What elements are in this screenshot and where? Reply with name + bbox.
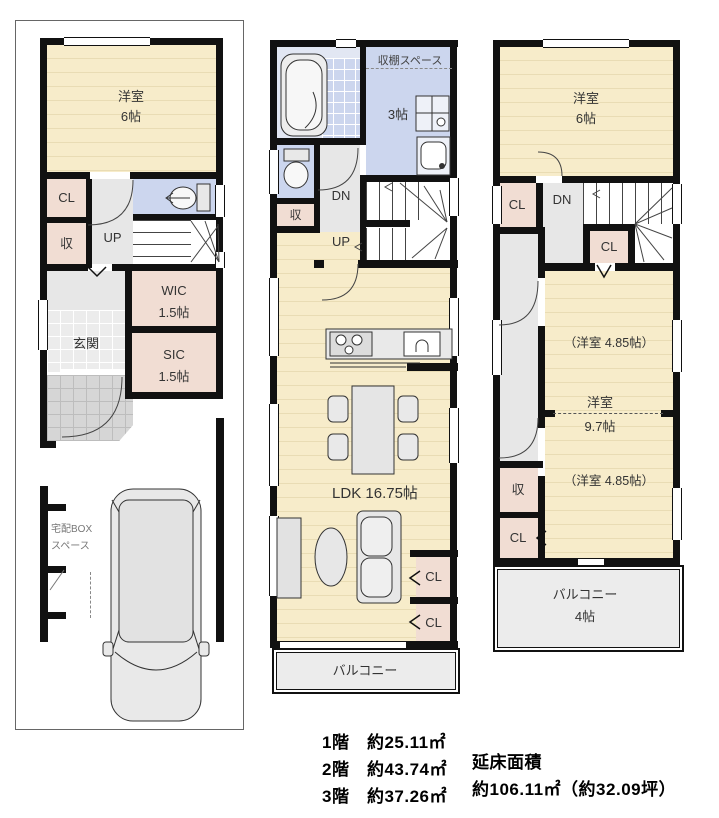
window [449, 298, 459, 356]
washroom-size-label: 3帖 [368, 104, 428, 123]
balcony-label: バルコニー [510, 584, 660, 603]
storage-label: 収 [498, 468, 538, 512]
wall [615, 263, 680, 271]
wall [538, 476, 545, 565]
stairs-dn-label: DN [544, 192, 580, 207]
room-b-label: （洋室 4.85帖） [545, 470, 673, 489]
wall [40, 172, 90, 179]
wic-label: WIC [132, 283, 216, 298]
wall [130, 172, 223, 179]
wall [86, 179, 92, 268]
wall [360, 175, 457, 182]
wall [40, 441, 56, 448]
wall [493, 176, 536, 183]
total-area-value: 約106.11㎡（約32.09坪） [472, 775, 676, 800]
room-label: 洋室 [556, 88, 616, 107]
storage-label: 収 [277, 204, 314, 226]
wall [604, 558, 680, 565]
closet-label: CL [590, 231, 628, 263]
wall [410, 550, 458, 557]
room-a-label: （洋室 4.85帖） [545, 332, 673, 351]
wall [216, 38, 223, 399]
wic-size-label: 1.5帖 [132, 302, 216, 321]
window [492, 320, 502, 375]
entrance-porch [47, 375, 133, 441]
wall [125, 326, 223, 333]
wall [40, 264, 88, 271]
window [269, 150, 279, 194]
wall [360, 40, 366, 144]
parking-tick [48, 566, 66, 573]
wall [410, 597, 458, 604]
window [672, 184, 682, 224]
window [269, 404, 279, 486]
wall [493, 461, 543, 468]
bathroom-tile-2f [322, 58, 360, 138]
wall [358, 260, 458, 268]
closet-label: CL [498, 518, 538, 558]
delivery-box-label: 宅配BOX [51, 520, 92, 535]
wall [125, 392, 223, 399]
window [269, 278, 279, 356]
closet-label: CL [416, 604, 451, 641]
wall [314, 260, 324, 268]
entrance-step [60, 369, 125, 375]
window [336, 39, 356, 48]
floor3-area-text: 3階 約37.26㎡ [322, 782, 447, 807]
stairs-up-label: UP [92, 230, 133, 245]
floor2-area-text: 2階 約43.74㎡ [322, 755, 447, 780]
toilet-room-2f [277, 144, 314, 198]
balcony-label: バルコニー [300, 660, 430, 679]
window [269, 516, 279, 596]
window [215, 185, 225, 217]
closet-label: CL [47, 179, 86, 217]
balcony-size-label: 4帖 [510, 606, 660, 625]
sic-label: SIC [132, 347, 216, 362]
wall [543, 263, 595, 271]
stair-treads-1f [133, 220, 191, 264]
shelf-space-dashed-line [366, 68, 452, 69]
wall [407, 363, 458, 371]
room-size-label: 6帖 [556, 108, 616, 127]
sic-size-label: 1.5帖 [132, 366, 216, 385]
parking-tick [48, 612, 66, 619]
room-main-size-label: 9.7帖 [575, 416, 625, 435]
window [215, 252, 225, 268]
toilet-room-1f [133, 179, 216, 214]
hallway-1f [47, 271, 125, 310]
window [449, 408, 459, 463]
wall [314, 144, 320, 232]
window [449, 178, 459, 216]
stairs-up-label: UP [322, 234, 360, 249]
stair-hall-1f [92, 179, 133, 264]
window [672, 320, 682, 372]
delivery-box-label2: スペース [51, 537, 90, 552]
room-main-label: 洋室 [575, 392, 625, 411]
window [64, 37, 150, 46]
room-size-label: 6帖 [101, 106, 161, 125]
total-area-label: 延床面積 [472, 748, 542, 773]
stair-treads-3f [583, 183, 665, 224]
floor1-area-text: 1階 約25.11㎡ [322, 728, 446, 753]
closet-label: CL [498, 183, 536, 227]
floor-plan-sheet: 洋室 6帖 CL 収 UP WIC 1.5帖 SIC 1.5帖 玄関 宅配BOX… [0, 0, 719, 818]
parking-wall-left [40, 486, 48, 642]
stairs-dn-label: DN [322, 188, 360, 203]
stair-treads-upper-2f [366, 182, 424, 220]
storage-label: 収 [47, 223, 86, 264]
delivery-box-dashed-line [90, 572, 91, 618]
room-partition-dashed [553, 413, 663, 414]
wall [40, 38, 47, 448]
entrance-label: 玄関 [47, 333, 125, 352]
ldk-label: LDK 16.75帖 [295, 482, 455, 503]
window [672, 488, 682, 540]
shelf-space-label: 収棚スペース [368, 52, 452, 68]
wall [366, 220, 410, 227]
wall [493, 227, 543, 234]
stair-treads-lower-2f [366, 228, 412, 260]
closet-label: CL [416, 557, 451, 597]
wall [562, 176, 680, 183]
wall [673, 40, 680, 565]
parking-wall-right [216, 418, 224, 642]
window [543, 39, 629, 48]
wall [493, 558, 578, 565]
room-label: 洋室 [101, 86, 161, 105]
wall [133, 214, 216, 220]
wall [270, 226, 320, 233]
wall [536, 183, 543, 227]
parking-tick [48, 504, 66, 511]
